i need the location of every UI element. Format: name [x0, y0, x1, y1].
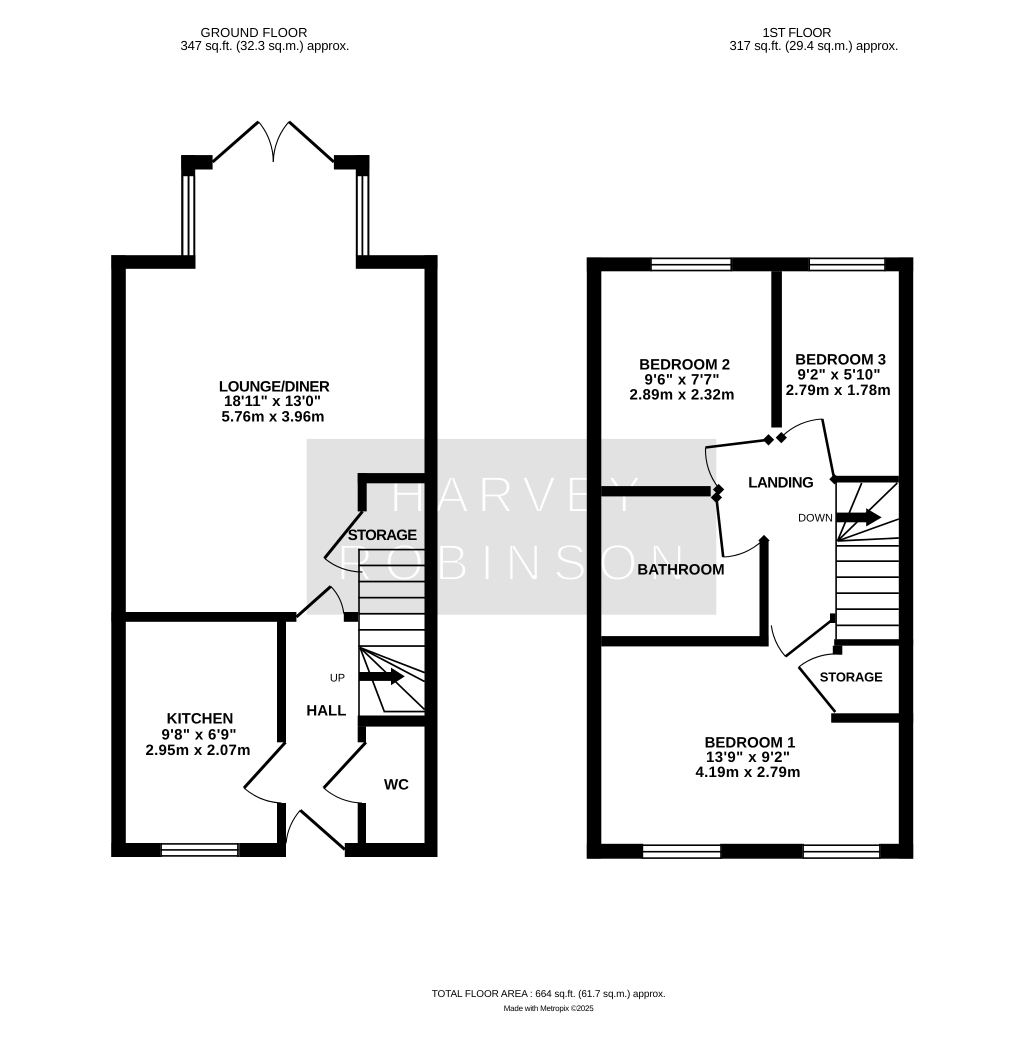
svg-text:STORAGE: STORAGE — [820, 670, 883, 685]
svg-text:2.89m x 2.32m: 2.89m x 2.32m — [630, 387, 735, 404]
svg-text:UP: UP — [330, 673, 345, 685]
svg-text:BATHROOM: BATHROOM — [637, 562, 724, 579]
svg-text:5.76m x 3.96m: 5.76m x 3.96m — [222, 409, 325, 426]
svg-text:STORAGE: STORAGE — [348, 527, 418, 544]
svg-text:WC: WC — [384, 777, 409, 794]
svg-text:317 sq.ft. (29.4 sq.m.) approx: 317 sq.ft. (29.4 sq.m.) approx. — [730, 38, 899, 53]
svg-text:347 sq.ft. (32.3 sq.m.) approx: 347 sq.ft. (32.3 sq.m.) approx. — [181, 38, 350, 53]
svg-text:TOTAL FLOOR AREA : 664 sq.ft.: TOTAL FLOOR AREA : 664 sq.ft. (61.7 sq.m… — [432, 989, 666, 1000]
svg-text:9'8" x 6'9": 9'8" x 6'9" — [162, 727, 237, 744]
svg-text:HALL: HALL — [306, 703, 346, 720]
svg-text:LANDING: LANDING — [748, 475, 814, 492]
svg-text:2.79m x 1.78m: 2.79m x 1.78m — [786, 382, 891, 399]
svg-text:2.95m x 2.07m: 2.95m x 2.07m — [146, 742, 251, 759]
svg-text:KITCHEN: KITCHEN — [167, 711, 234, 728]
svg-text:4.19m x 2.79m: 4.19m x 2.79m — [696, 764, 801, 781]
svg-text:18'11" x 13'0": 18'11" x 13'0" — [224, 393, 321, 410]
svg-text:9'2" x 5'10": 9'2" x 5'10" — [798, 366, 881, 383]
svg-text:Made with Metropix ©2025: Made with Metropix ©2025 — [504, 1004, 595, 1013]
svg-text:DOWN: DOWN — [798, 513, 833, 525]
